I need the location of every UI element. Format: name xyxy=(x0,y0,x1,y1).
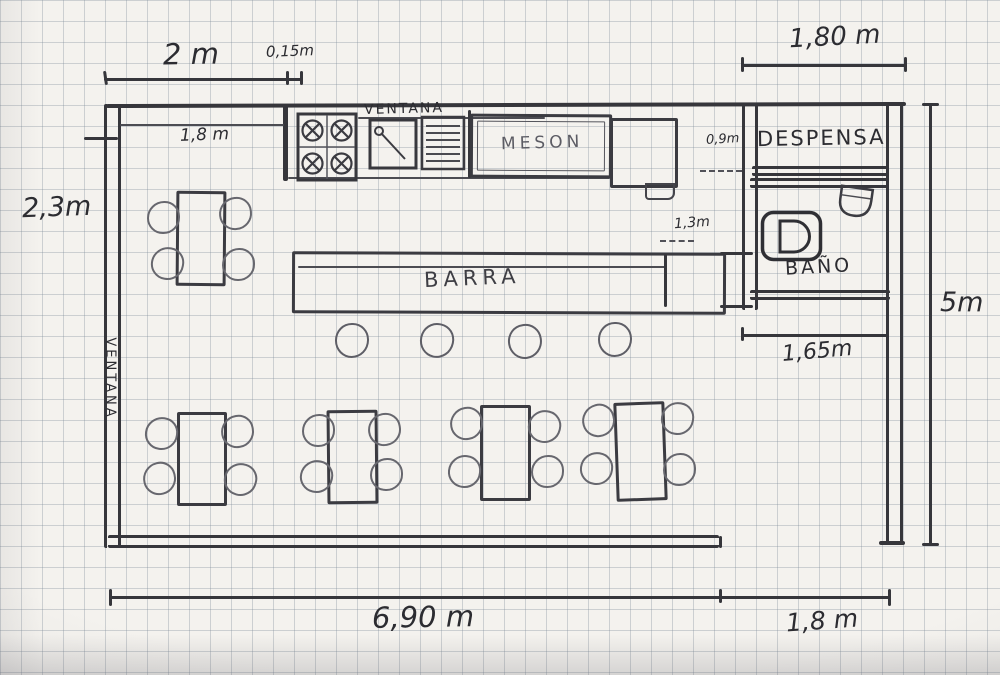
chair xyxy=(370,458,403,491)
dim-tick xyxy=(741,57,744,72)
dim-tick xyxy=(300,71,303,85)
wall-bottom-end-cap xyxy=(719,536,722,548)
dim-tick xyxy=(922,543,939,546)
bar-stool xyxy=(417,320,458,361)
dim-tick xyxy=(109,589,112,606)
dim-tick xyxy=(888,589,891,606)
chair xyxy=(578,450,615,487)
stove xyxy=(296,112,358,182)
dim-inner-window: 1,8 m xyxy=(180,126,230,145)
wall-top xyxy=(106,102,906,108)
meson-counter: MESON xyxy=(470,114,612,179)
fridge xyxy=(610,118,678,188)
dim-right-height: 5m xyxy=(940,289,983,316)
dim-bano-width: 1,65m xyxy=(781,338,853,366)
dim-top-window: 2 m xyxy=(163,40,219,70)
chair xyxy=(143,415,180,452)
chair xyxy=(139,458,179,498)
wall-bottom xyxy=(108,535,719,548)
barra-divider xyxy=(664,254,667,307)
dim-line-2m xyxy=(104,78,302,81)
table xyxy=(177,412,227,506)
dim-despensa-opening: 0,9m xyxy=(706,132,740,147)
dim-line-180 xyxy=(742,64,906,67)
table xyxy=(176,191,227,286)
dim-line-bottom xyxy=(110,596,890,599)
chair xyxy=(302,414,335,447)
table xyxy=(480,405,531,501)
bano-bottom-wall xyxy=(750,290,890,300)
dim-bottom-width: 6,90 m xyxy=(372,602,475,633)
chair xyxy=(147,201,180,234)
wall-right xyxy=(886,104,903,545)
toilet xyxy=(760,210,824,263)
bar-stool xyxy=(598,322,632,357)
meson-label: MESON xyxy=(501,134,584,153)
bar-stool xyxy=(506,322,545,361)
barra-connector-bottom xyxy=(720,305,753,308)
despensa-dashed-line xyxy=(700,170,742,172)
kitchen-left-wall xyxy=(283,105,288,181)
dim-tick xyxy=(719,589,722,603)
barra-connector-top xyxy=(720,252,753,255)
drying-rack xyxy=(420,115,466,171)
ventana-left-label: VENTANA xyxy=(104,337,117,419)
dim-tick xyxy=(286,71,289,85)
dim-line-5m xyxy=(929,104,932,545)
dim-entrance-width: 1,8 m xyxy=(785,606,859,636)
dim-line-165 xyxy=(742,334,888,337)
dim-left-height: 2,3m xyxy=(22,193,92,222)
dim-pass-width: 1,3m xyxy=(674,215,711,231)
pass-dashed-line xyxy=(660,240,694,242)
kitchen-sink xyxy=(368,118,418,170)
fridge-handle xyxy=(645,183,675,200)
chair xyxy=(222,248,255,281)
dim-tick xyxy=(904,57,907,72)
despensa-bottom-wall xyxy=(752,166,888,176)
chair xyxy=(446,453,482,489)
wall-right-foot xyxy=(879,541,905,545)
chair xyxy=(531,455,564,488)
wall-separator-right xyxy=(742,105,758,310)
dim-top-right: 1,80 m xyxy=(788,22,881,53)
barra-label: BARRA xyxy=(424,266,521,291)
dim-wall-thickness: 0,15m xyxy=(266,43,315,60)
chair xyxy=(663,453,696,486)
table xyxy=(613,401,667,502)
bar-stool xyxy=(335,323,369,358)
despensa-label: DESPENSA xyxy=(757,127,886,150)
ventana-left-wrap: VENTANA xyxy=(93,308,127,448)
floor-plan-sketch: VENTANA MESON DESPENSA 0,9m xyxy=(0,0,1000,675)
dim-tick xyxy=(84,137,118,140)
dim-tick xyxy=(922,103,939,106)
bano-label: BAÑO xyxy=(785,256,853,278)
bathroom-sink xyxy=(834,181,881,222)
dim-tick xyxy=(741,327,744,341)
